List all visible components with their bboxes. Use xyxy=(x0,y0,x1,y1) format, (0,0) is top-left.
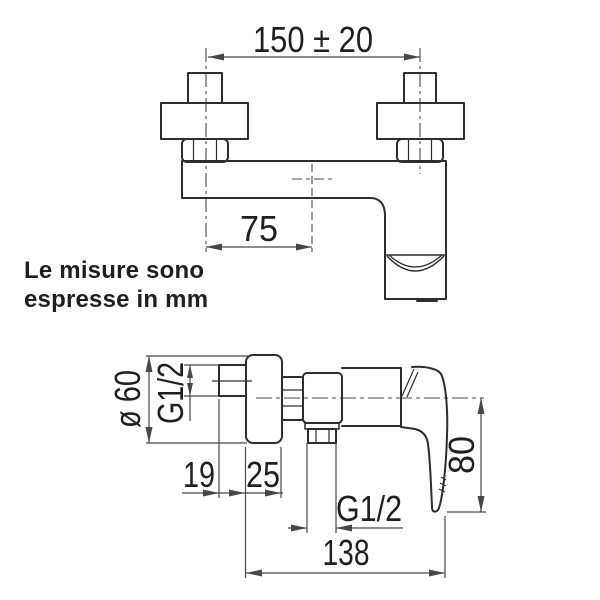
left-escutcheon-flange xyxy=(161,103,248,139)
dim-escutcheon-diameter-label: ø 60 xyxy=(107,370,148,428)
left-hex-nut-facets xyxy=(194,139,217,162)
cartridge-housing xyxy=(342,368,401,426)
arrow-left xyxy=(246,570,262,577)
dim-spout-center-offset: 75 xyxy=(206,208,312,251)
dim-handle-drop-label: 80 xyxy=(441,436,482,474)
handle-neck-lines xyxy=(402,369,418,397)
technical-drawing-page: Le misure sono espresse in mm xyxy=(0,0,600,600)
dim-outlet-thread-label: G1/2 xyxy=(336,488,402,529)
left-wall-fixture xyxy=(161,73,248,162)
arrow-25-left xyxy=(229,490,245,497)
dim-mounting-distance-label: 150 ± 20 xyxy=(253,19,373,60)
dim-mounting-distance: 150 ± 20 xyxy=(208,19,420,61)
dim-outlet-thread: G1/2 xyxy=(288,443,403,533)
arrow-up xyxy=(478,398,485,414)
aerator-arc-outer xyxy=(387,256,444,271)
dim-spout-center-offset-label: 75 xyxy=(240,208,278,249)
front-view: 150 ± 20 75 xyxy=(161,19,464,301)
side-view: ø 60 G1/2 19 25 xyxy=(107,355,486,578)
arrow-right xyxy=(429,570,445,577)
outlet-hex xyxy=(308,429,336,443)
outlet-hex-facets xyxy=(316,429,329,443)
dim-inlet-thread: G1/2 xyxy=(150,362,218,424)
arrow-down xyxy=(146,427,153,443)
left-hex-nut xyxy=(182,139,228,162)
arrow-right xyxy=(296,244,312,251)
escutcheon-plate-side xyxy=(246,355,282,443)
left-connector-stem xyxy=(188,73,222,103)
dim-inlet-thread-label: G1/2 xyxy=(150,362,191,424)
arrow-down xyxy=(478,496,485,512)
arrow-left xyxy=(291,525,307,532)
arrow-right xyxy=(404,54,420,61)
drawing-canvas: 150 ± 20 75 xyxy=(0,0,600,600)
outlet-nipple xyxy=(305,423,339,443)
dim-wall-clearance-and-plate-depth: 19 25 xyxy=(182,399,283,578)
mixer-body-outline xyxy=(182,161,446,299)
arrow-left xyxy=(206,244,222,251)
dim-total-depth-label: 138 xyxy=(323,532,370,573)
dim-wall-clearance-label: 19 xyxy=(183,454,215,495)
arrow-left xyxy=(208,54,224,61)
dim-plate-depth-label: 25 xyxy=(246,454,280,495)
